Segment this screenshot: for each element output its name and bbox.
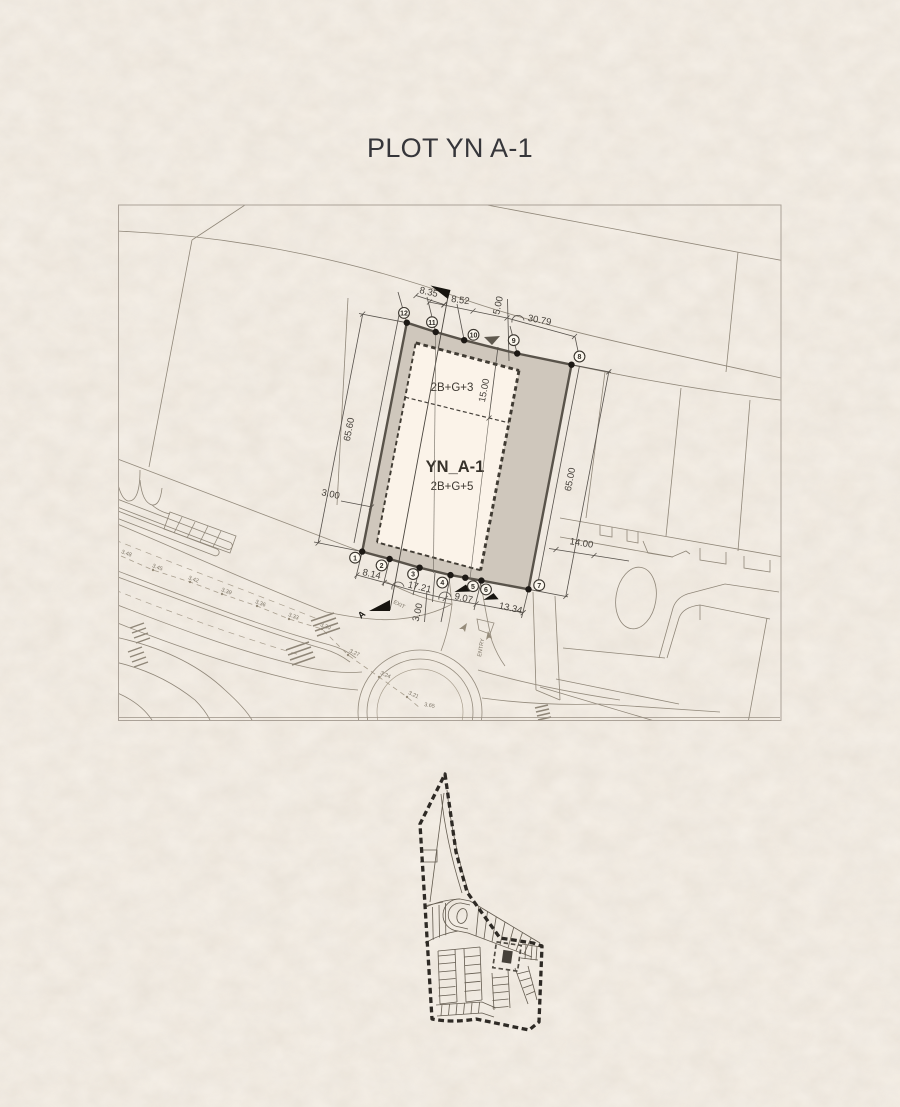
svg-text:10: 10	[470, 332, 478, 339]
svg-text:2: 2	[380, 563, 384, 570]
svg-text:11: 11	[428, 320, 436, 327]
svg-text:7: 7	[537, 583, 541, 590]
svg-text:2B+G+5: 2B+G+5	[431, 481, 474, 493]
svg-text:5: 5	[471, 584, 475, 591]
svg-text:4: 4	[440, 580, 444, 587]
svg-text:12: 12	[400, 311, 408, 318]
svg-text:1: 1	[353, 555, 357, 562]
svg-text:8: 8	[578, 354, 582, 361]
svg-text:2B+G+3: 2B+G+3	[431, 382, 474, 394]
svg-text:PLOT YN A-1: PLOT YN A-1	[367, 133, 533, 163]
svg-text:9: 9	[512, 338, 516, 345]
svg-text:3: 3	[411, 572, 415, 579]
svg-text:6: 6	[484, 587, 488, 594]
